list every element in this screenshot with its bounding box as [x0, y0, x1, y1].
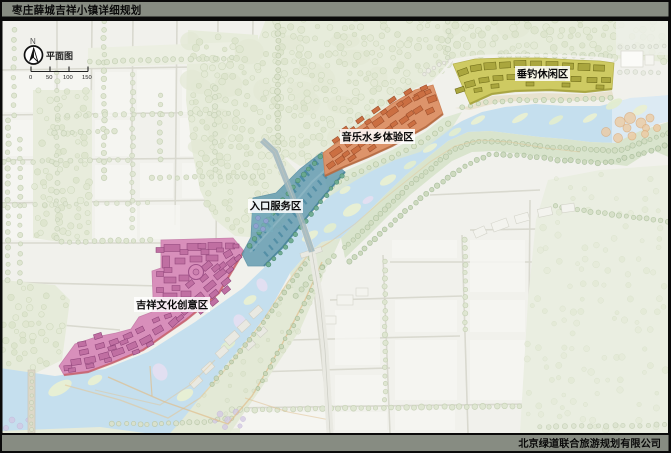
- svg-text:平面图: 平面图: [46, 51, 73, 61]
- svg-text:北京绿道联合旅游规划有限公司: 北京绿道联合旅游规划有限公司: [518, 437, 661, 450]
- svg-text:垂钓休闲区: 垂钓休闲区: [517, 68, 569, 81]
- svg-text:50: 50: [46, 75, 52, 81]
- svg-text:N: N: [30, 37, 36, 46]
- svg-text:吉祥文化创意区: 吉祥文化创意区: [136, 299, 209, 312]
- svg-text:0: 0: [29, 75, 32, 81]
- svg-text:100: 100: [63, 75, 73, 81]
- svg-text:150: 150: [82, 75, 92, 81]
- svg-text:入口服务区: 入口服务区: [250, 200, 302, 213]
- svg-text:枣庄薛城吉祥小镇详细规划: 枣庄薛城吉祥小镇详细规划: [11, 4, 142, 17]
- svg-text:音乐水乡体验区: 音乐水乡体验区: [341, 131, 414, 144]
